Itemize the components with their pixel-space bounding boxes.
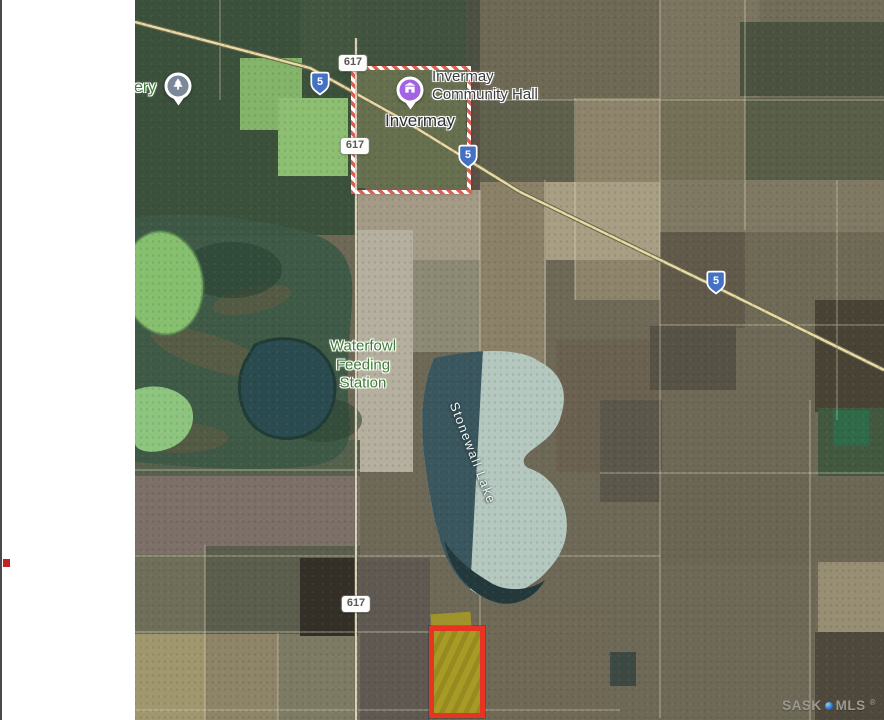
- screenshot-stage: 617 617 617 5 5 5: [0, 0, 884, 720]
- watermark-mls: MLS: [836, 698, 866, 713]
- community-hall-pin[interactable]: [397, 77, 424, 104]
- town-label[interactable]: Invermay: [385, 111, 455, 131]
- svg-text:5: 5: [713, 275, 719, 287]
- lake-label: Stonewall Lake: [447, 400, 500, 506]
- waterfowl-label-line2: Feeding: [330, 356, 396, 375]
- road-badge-617-north: 617: [339, 55, 367, 71]
- road-badge-617-middle: 617: [341, 138, 369, 154]
- community-hall-icon: [404, 81, 417, 99]
- waterfowl-label-line1: Waterfowl: [330, 337, 396, 356]
- waterfowl-station-label[interactable]: Waterfowl Feeding Station: [330, 337, 396, 393]
- road-badge-617-south: 617: [342, 596, 370, 612]
- mls-dot-icon: [825, 702, 833, 710]
- highway-shield-icon: 5: [705, 270, 727, 295]
- community-hall-label-line1: Invermay: [432, 68, 538, 86]
- watermark-sask: SASK: [782, 698, 822, 713]
- left-margin: [0, 0, 135, 720]
- tree-icon: [172, 77, 185, 95]
- partial-poi-label[interactable]: ery: [134, 79, 156, 97]
- highway-shield-icon: 5: [457, 144, 479, 169]
- listing-highlight-rect: [429, 626, 485, 718]
- community-hall-label[interactable]: Invermay Community Hall: [432, 68, 538, 104]
- sask-mls-watermark: SASK MLS ®: [782, 698, 876, 713]
- waterfowl-label-line3: Station: [330, 374, 396, 393]
- highway-shield-icon: 5: [309, 71, 331, 96]
- watermark-reg: ®: [870, 698, 876, 707]
- page-edge-line: [0, 0, 2, 720]
- community-hall-label-line2: Community Hall: [432, 86, 538, 104]
- svg-text:5: 5: [465, 149, 471, 161]
- red-list-marker: [3, 559, 10, 567]
- svg-text:5: 5: [317, 76, 323, 88]
- park-poi-pin[interactable]: [165, 73, 192, 100]
